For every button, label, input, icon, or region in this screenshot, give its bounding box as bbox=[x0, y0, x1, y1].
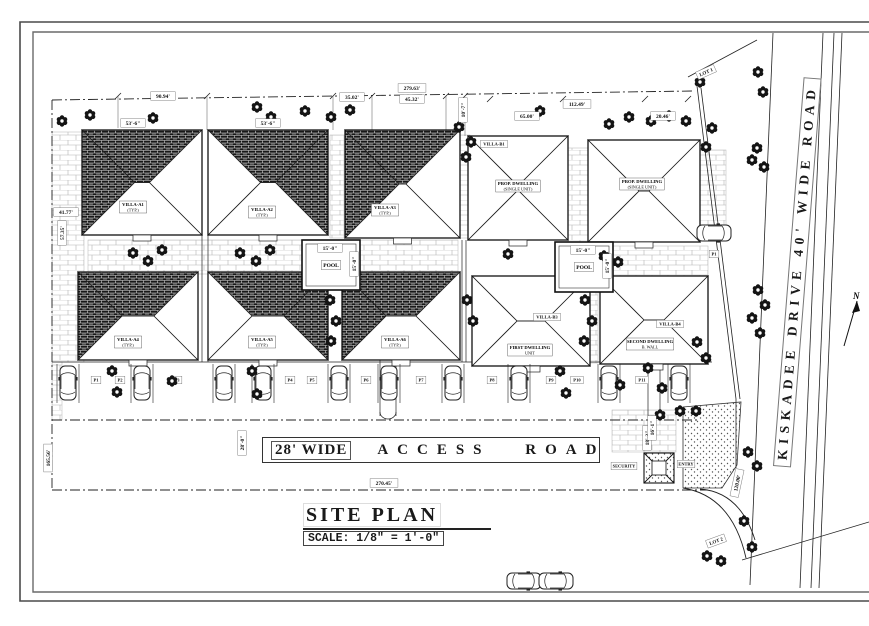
svg-text:P8: P8 bbox=[489, 378, 495, 383]
svg-text:PROP. DWELLING: PROP. DWELLING bbox=[498, 181, 539, 186]
svg-text:(TYP.): (TYP.) bbox=[379, 211, 391, 216]
tree-icon bbox=[561, 387, 572, 398]
parked-car bbox=[329, 366, 348, 400]
tree-icon bbox=[707, 122, 718, 133]
tree-icon bbox=[555, 365, 566, 376]
dimension-label: 279.63' bbox=[398, 84, 426, 93]
svg-text:112.49': 112.49' bbox=[569, 102, 586, 108]
tree-icon bbox=[753, 284, 764, 295]
access-road-width: 28' WIDE bbox=[271, 441, 351, 460]
svg-text:N: N bbox=[852, 291, 860, 301]
drawing-sheet: VILLA-A1(TYP.)VILLA-A2(TYP.)VILLA-A3(TYP… bbox=[0, 0, 869, 626]
building-tag: VILLA-B4 bbox=[657, 320, 684, 328]
svg-text:P7: P7 bbox=[418, 378, 424, 383]
svg-text:165.56': 165.56' bbox=[46, 449, 52, 466]
svg-text:ENTRY: ENTRY bbox=[678, 462, 694, 467]
svg-text:VILLA-A2: VILLA-A2 bbox=[251, 207, 273, 212]
tree-icon bbox=[743, 446, 754, 457]
dimension-label: 57.35' bbox=[58, 221, 67, 245]
tree-icon bbox=[752, 460, 763, 471]
svg-text:PROP. DWELLING: PROP. DWELLING bbox=[622, 179, 663, 184]
parked-car bbox=[539, 571, 573, 590]
svg-text:P11: P11 bbox=[638, 378, 646, 383]
svg-text:35.02': 35.02' bbox=[345, 95, 359, 101]
svg-text:15'-0": 15'-0" bbox=[576, 248, 591, 254]
svg-text:15'-0": 15'-0" bbox=[352, 257, 358, 272]
tree-icon bbox=[252, 101, 263, 112]
parking-label: P5 bbox=[307, 376, 317, 384]
dimension-label: 53'-6" bbox=[121, 119, 145, 128]
building-villa-b4: SECOND DWELLINGB. WALL bbox=[600, 276, 708, 370]
parked-car bbox=[509, 366, 528, 400]
svg-text:VILLA-B3: VILLA-B3 bbox=[536, 315, 558, 320]
svg-text:(SINGLE UNIT): (SINGLE UNIT) bbox=[628, 185, 657, 190]
parking-label: P9 bbox=[546, 376, 556, 384]
svg-text:P2: P2 bbox=[117, 378, 123, 383]
paved-area bbox=[88, 240, 458, 274]
tree-icon bbox=[326, 111, 337, 122]
svg-text:28'-0": 28'-0" bbox=[240, 436, 246, 451]
svg-text:53'-6": 53'-6" bbox=[126, 121, 141, 127]
tree-icon bbox=[755, 327, 766, 338]
svg-text:UNIT: UNIT bbox=[525, 351, 535, 356]
tree-icon bbox=[747, 312, 758, 323]
svg-text:(TYP.): (TYP.) bbox=[256, 343, 268, 348]
parking-label: P4 bbox=[285, 376, 295, 384]
svg-text:P6: P6 bbox=[363, 378, 369, 383]
svg-text:POOL: POOL bbox=[323, 263, 339, 269]
parked-car bbox=[669, 366, 688, 400]
svg-text:P1: P1 bbox=[93, 378, 99, 383]
parked-car bbox=[443, 366, 462, 400]
parked-car bbox=[58, 366, 77, 400]
parking-label: P1 bbox=[91, 376, 101, 384]
dimension-label: 270.45' bbox=[370, 479, 398, 488]
access-road-label: 28' WIDE ACCESS ROAD bbox=[262, 437, 600, 463]
svg-text:LOT 1: LOT 1 bbox=[699, 68, 714, 79]
security-label: SECURITY bbox=[611, 462, 637, 469]
svg-text:15'-0": 15'-0" bbox=[323, 246, 338, 252]
lot-label: LOT 1 bbox=[695, 64, 716, 79]
tree-icon bbox=[345, 104, 356, 115]
parked-car bbox=[214, 366, 233, 400]
tree-icon bbox=[739, 515, 750, 526]
road-line bbox=[742, 522, 869, 560]
building-tag: VILLA-B1 bbox=[481, 140, 508, 148]
building-villa-b1: PROP. DWELLING(SINGLE UNIT) bbox=[468, 136, 568, 246]
building-villa-a1: VILLA-A1(TYP.) bbox=[82, 130, 202, 241]
parking-label: P2 bbox=[115, 376, 125, 384]
svg-text:VILLA-A1: VILLA-A1 bbox=[122, 202, 144, 207]
svg-text:(SINGLE UNIT): (SINGLE UNIT) bbox=[504, 187, 533, 192]
dimension-label: 15'-0" bbox=[318, 244, 342, 253]
svg-text:(TYP.): (TYP.) bbox=[256, 213, 268, 218]
tree-icon bbox=[758, 86, 769, 97]
svg-text:SECOND DWELLING: SECOND DWELLING bbox=[627, 339, 674, 344]
dimension-label: 90.94' bbox=[151, 92, 175, 101]
dimension-label: 53'-6" bbox=[256, 119, 280, 128]
sheet-title: SITE PLAN bbox=[303, 504, 491, 530]
walkway-end bbox=[380, 412, 396, 419]
tree-icon bbox=[331, 315, 342, 326]
tree-icon bbox=[747, 541, 758, 552]
building-tag: VILLA-B3 bbox=[534, 313, 561, 321]
tree-icon bbox=[702, 550, 713, 561]
dimension-label: 65.00' bbox=[515, 112, 539, 121]
tree-icon bbox=[85, 109, 96, 120]
dimension-label: 112.49' bbox=[563, 100, 591, 109]
tree-icon bbox=[681, 115, 692, 126]
svg-text:VILLA-A3: VILLA-A3 bbox=[374, 205, 396, 210]
svg-text:VILLA-B1: VILLA-B1 bbox=[483, 142, 505, 147]
parking-label: P10 bbox=[571, 376, 584, 384]
svg-text:53'-6": 53'-6" bbox=[261, 121, 276, 127]
svg-text:POOL: POOL bbox=[576, 265, 592, 271]
tree-icon bbox=[657, 382, 668, 393]
svg-text:FIRST DWELLING: FIRST DWELLING bbox=[510, 345, 551, 350]
tree-icon bbox=[462, 294, 473, 305]
paved-area bbox=[330, 135, 344, 238]
svg-text:(TYP.): (TYP.) bbox=[122, 343, 134, 348]
dimension-label: 15'-0" bbox=[603, 254, 612, 278]
tree-icon bbox=[716, 555, 727, 566]
gate-label: ENTRY bbox=[677, 460, 695, 467]
parking-label: P8 bbox=[487, 376, 497, 384]
building-villa-b2: PROP. DWELLING(SINGLE UNIT) bbox=[588, 140, 700, 248]
kerb-curve bbox=[683, 488, 746, 558]
svg-text:P10: P10 bbox=[573, 378, 581, 383]
access-road-name: ACCESS ROAD bbox=[377, 442, 605, 459]
parking-label: P6 bbox=[361, 376, 371, 384]
dimension-label: 28'-0" bbox=[238, 431, 247, 455]
svg-text:VILLA-A5: VILLA-A5 bbox=[251, 337, 273, 342]
tree-icon bbox=[624, 111, 635, 122]
svg-text:57.35': 57.35' bbox=[60, 226, 66, 240]
guard-booth bbox=[644, 453, 674, 483]
parking-label: P11 bbox=[636, 376, 649, 384]
svg-text:P5: P5 bbox=[309, 378, 315, 383]
parked-car bbox=[132, 366, 151, 400]
dimension-label: 41.77' bbox=[54, 208, 78, 217]
tree-icon bbox=[503, 248, 514, 259]
svg-text:279.63': 279.63' bbox=[404, 86, 421, 92]
lot-label: LOT 2 bbox=[705, 534, 726, 548]
svg-text:15'-0": 15'-0" bbox=[605, 259, 611, 274]
svg-text:(TYP.): (TYP.) bbox=[389, 343, 401, 348]
dimension-label: 20.46' bbox=[651, 112, 675, 121]
north-arrow: N bbox=[844, 291, 860, 346]
dimension-label: 45.32' bbox=[400, 95, 424, 104]
tree-icon bbox=[57, 115, 68, 126]
tree-icon bbox=[300, 105, 311, 116]
tree-icon bbox=[752, 142, 763, 153]
building-villa-a3: VILLA-A3(TYP.) bbox=[345, 130, 460, 244]
svg-text:P9: P9 bbox=[548, 378, 554, 383]
dimension-label: 10'-7" bbox=[459, 98, 468, 122]
dimension-label: 16'-1" bbox=[648, 416, 657, 440]
dim-tick bbox=[642, 96, 648, 102]
svg-text:10'-7": 10'-7" bbox=[461, 103, 467, 118]
tree-icon bbox=[148, 112, 159, 123]
parking-label: P1 bbox=[709, 250, 719, 258]
svg-text:SECURITY: SECURITY bbox=[613, 464, 637, 469]
svg-text:P4: P4 bbox=[287, 378, 293, 383]
svg-text:41.77': 41.77' bbox=[59, 210, 73, 216]
parking-label: P7 bbox=[416, 376, 426, 384]
tree-icon bbox=[107, 365, 118, 376]
building-villa-a4: VILLA-A4(TYP.) bbox=[78, 272, 198, 366]
dimension-label: 15'-0" bbox=[571, 246, 595, 255]
svg-text:VILLA-A6: VILLA-A6 bbox=[384, 337, 406, 342]
parked-car bbox=[697, 223, 731, 242]
dim-tick bbox=[685, 96, 691, 102]
parked-car bbox=[507, 571, 541, 590]
building-villa-a2: VILLA-A2(TYP.) bbox=[208, 130, 328, 241]
landscape-stipple bbox=[683, 402, 741, 488]
svg-text:VILLA-A4: VILLA-A4 bbox=[117, 337, 139, 342]
svg-text:VILLA-B4: VILLA-B4 bbox=[659, 322, 681, 327]
tree-icon bbox=[112, 386, 123, 397]
svg-text:(TYP.): (TYP.) bbox=[127, 208, 139, 213]
dimension-label: 15'-0" bbox=[350, 252, 359, 276]
svg-text:16'-1": 16'-1" bbox=[650, 421, 656, 436]
svg-text:270.45': 270.45' bbox=[376, 481, 393, 487]
dimension-label: 35.02' bbox=[340, 93, 364, 102]
tree-icon bbox=[753, 66, 764, 77]
svg-text:45.32': 45.32' bbox=[405, 97, 419, 103]
dimension-label: 165.56' bbox=[44, 444, 53, 472]
svg-text:B. WALL: B. WALL bbox=[642, 345, 659, 350]
tree-icon bbox=[747, 154, 758, 165]
tree-icon bbox=[604, 118, 615, 129]
parked-car bbox=[379, 366, 398, 400]
svg-text:90.94': 90.94' bbox=[156, 94, 170, 100]
svg-text:65.00': 65.00' bbox=[520, 114, 534, 120]
svg-text:P1: P1 bbox=[711, 252, 717, 257]
dim-tick bbox=[487, 96, 493, 102]
svg-text:20.46': 20.46' bbox=[656, 114, 670, 120]
sheet-scale: SCALE: 1/8" = 1'-0" bbox=[303, 531, 444, 546]
